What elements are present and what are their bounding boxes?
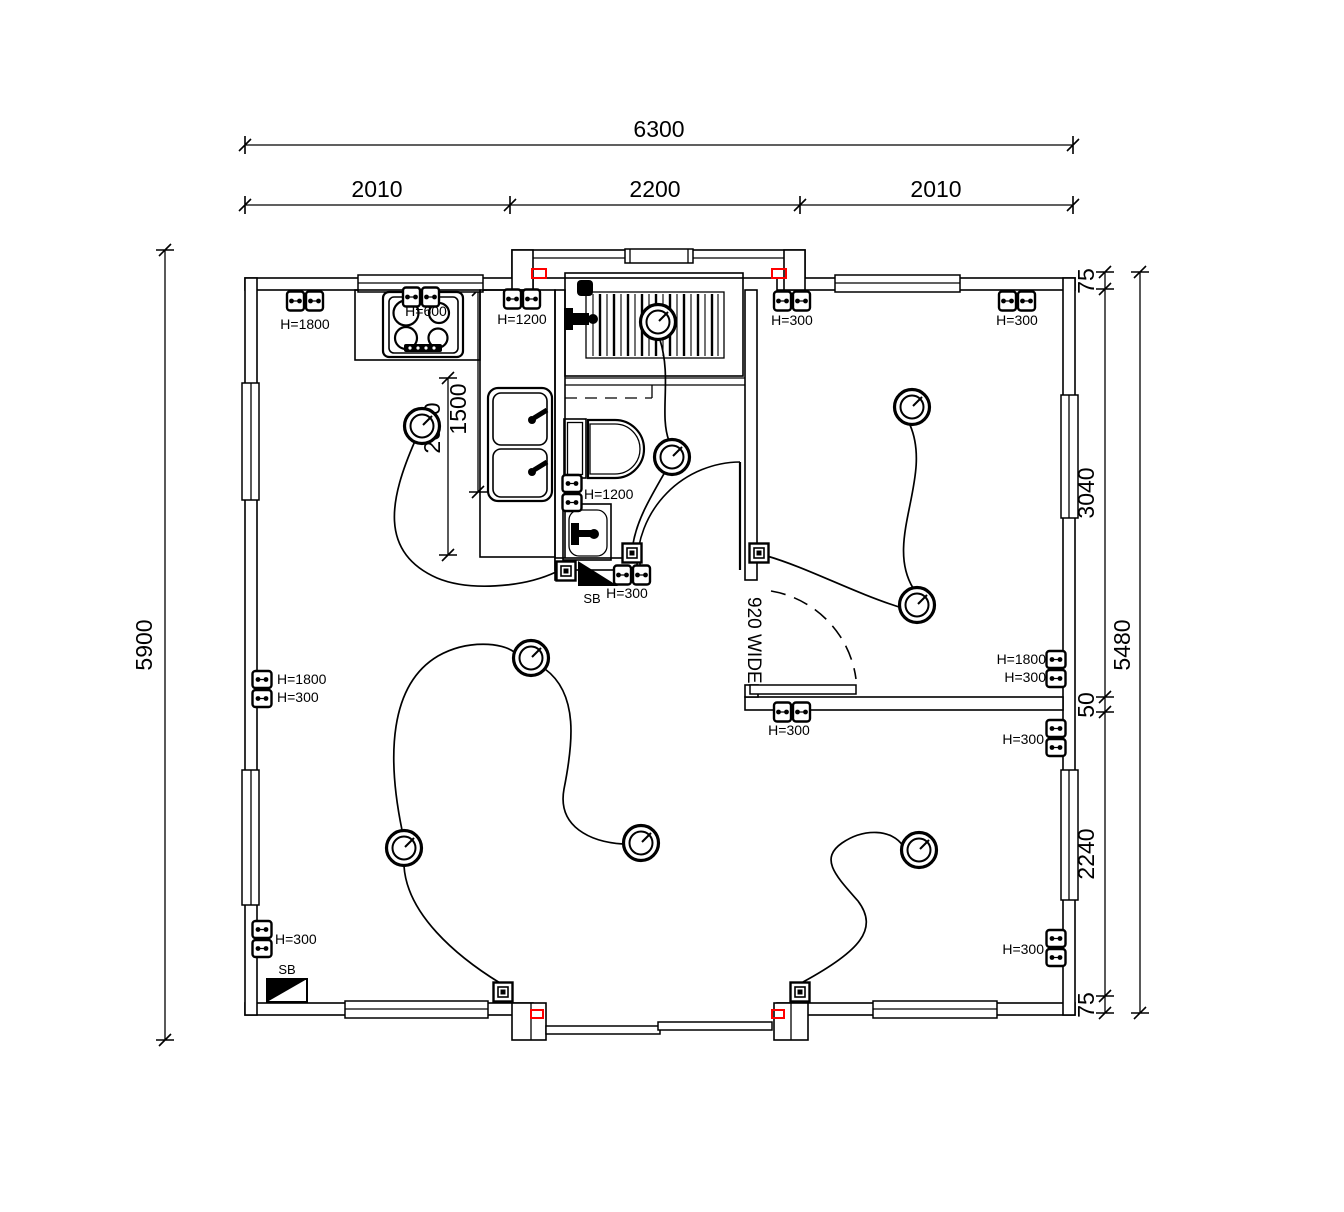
- kitchen-sink: [488, 388, 552, 501]
- bathroom-door: [637, 462, 740, 570]
- kitchen-counter-run: [480, 290, 555, 557]
- corridor-wall: [745, 290, 757, 580]
- sb-label: SB: [278, 962, 295, 977]
- outlet-height-label: H=300: [1004, 669, 1046, 685]
- dim-right-seg-5: 75: [1073, 992, 1099, 1018]
- dim-kitchen-1: 1500: [445, 383, 471, 434]
- outlet-height-label: H=300: [996, 312, 1038, 328]
- outlet-height-label: H=300: [771, 312, 813, 328]
- ceiling-light-symbol: [405, 409, 440, 444]
- outlet-height-label: H=300: [606, 585, 648, 601]
- outlet-height-label: H=1200: [584, 486, 634, 502]
- door-width-label: 920 WIDE: [743, 597, 764, 684]
- dim-right-seg-1: 75: [1073, 268, 1099, 294]
- ceiling-light-symbol: [902, 833, 937, 868]
- outlet-height-label: H=300: [1002, 941, 1044, 957]
- ceiling-light-symbol: [900, 588, 935, 623]
- bottom-sliding-door: [512, 1003, 808, 1040]
- wiring-layer: [394, 340, 917, 983]
- power-outlet-symbol: [504, 290, 540, 309]
- ceiling-light-symbol: [514, 641, 549, 676]
- window-bottom-right: [873, 1001, 997, 1018]
- power-outlet-symbol: [774, 703, 810, 722]
- ceiling-light-symbol: [895, 390, 930, 425]
- dim-left-total: 5900: [131, 619, 157, 670]
- outlet-height-label: H=300: [277, 689, 319, 705]
- sb-label: SB: [583, 591, 600, 606]
- power-outlet-symbol: [1047, 651, 1066, 687]
- window-bottom-left: [345, 1001, 488, 1018]
- interior-door-920: [750, 591, 856, 694]
- power-outlet-symbol: [999, 292, 1035, 311]
- wash-basin: [563, 504, 611, 560]
- dim-top-seg-3: 2010: [910, 176, 961, 202]
- fixtures-layer: SB SB: [267, 273, 745, 1002]
- floor-drain: [577, 280, 593, 296]
- electrical-symbols-layer: H=1800H=600H=1200H=300H=300H=1800H=300H=…: [253, 288, 1066, 1002]
- outlet-height-label: H=1200: [497, 311, 547, 327]
- outlet-height-label: H=1800: [280, 316, 330, 332]
- ceiling-light-symbol: [655, 440, 690, 475]
- power-outlet-symbol: [253, 921, 272, 957]
- dim-top-seg-1: 2010: [351, 176, 402, 202]
- power-outlet-symbol: [287, 292, 323, 311]
- window-right-upper: [1061, 395, 1078, 518]
- top-bumpout-window: [512, 249, 805, 290]
- power-outlet-symbol: [563, 475, 582, 511]
- ceiling-light-symbol: [641, 305, 676, 340]
- dim-right-seg-3: 50: [1073, 692, 1099, 718]
- light-switch-symbol: [623, 544, 642, 563]
- outlet-height-label: H=300: [275, 931, 317, 947]
- outlet-height-label: H=1800: [997, 651, 1047, 667]
- outlet-height-label: H=300: [768, 722, 810, 738]
- power-outlet-symbol: [774, 292, 810, 311]
- electrical-floor-plan: 6300 2010 2200 2010 5900 75 3040 50 2240…: [0, 0, 1344, 1212]
- power-outlet-symbol: [253, 671, 272, 707]
- window-left-upper: [242, 383, 259, 500]
- window-left-lower: [242, 770, 259, 905]
- outlet-height-label: H=600: [405, 303, 447, 319]
- ceiling-light-symbol: [624, 826, 659, 861]
- walls-layer: [242, 249, 1078, 1040]
- dim-top-seg-2: 2200: [629, 176, 680, 202]
- light-switch-symbol: [750, 544, 769, 563]
- distribution-board-corner: SB: [267, 962, 307, 1002]
- light-switch-symbol: [557, 562, 576, 581]
- dim-right-outer: 5480: [1109, 619, 1135, 670]
- power-outlet-symbol: [614, 566, 650, 585]
- window-top-right: [835, 275, 960, 292]
- light-switch-symbol: [791, 983, 810, 1002]
- outlet-height-label: H=300: [1002, 731, 1044, 747]
- light-switch-symbol: [494, 983, 513, 1002]
- power-outlet-symbol: [1047, 930, 1066, 966]
- outlet-height-label: H=1800: [277, 671, 327, 687]
- power-outlet-symbol: [1047, 720, 1066, 756]
- window-right-lower: [1061, 770, 1078, 900]
- ceiling-light-symbol: [387, 831, 422, 866]
- dim-top-total: 6300: [633, 116, 684, 142]
